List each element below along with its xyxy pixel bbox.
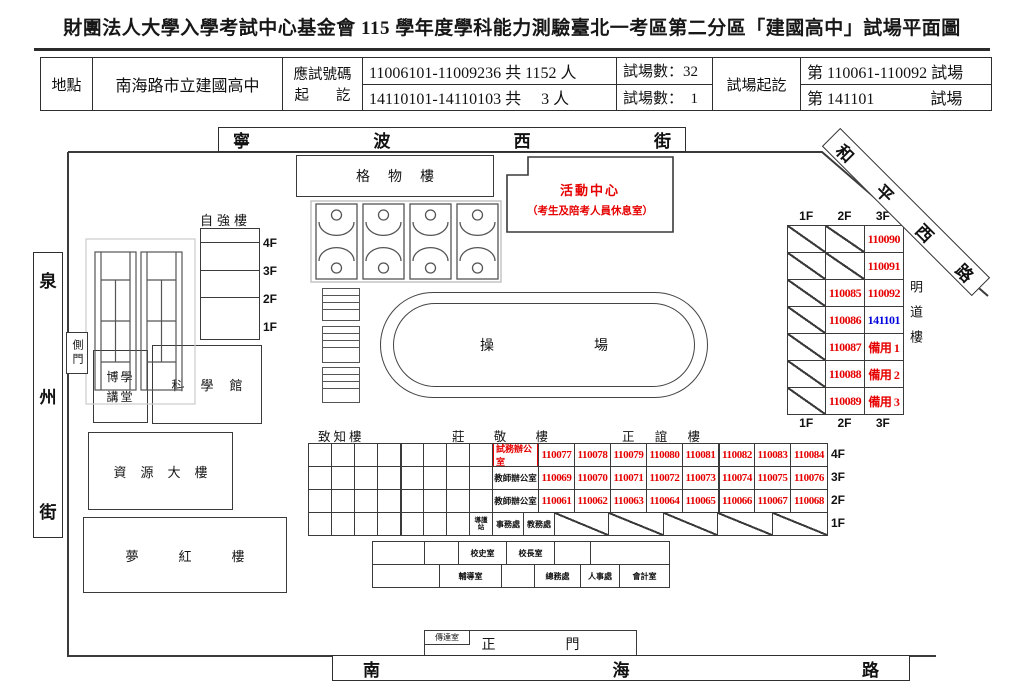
label-char: 正 [482,634,496,654]
room-cell: 110069 [539,467,575,489]
unused-cell [788,280,826,307]
label-char: 州 [40,383,57,408]
grid-row: 教師辦公室11006911007011007111007211007311007… [309,467,827,490]
label-char: 寧 [233,127,250,152]
empty-cell [332,513,355,535]
room-cell: 110067 [755,490,791,512]
room-cell: 110078 [575,444,611,466]
label-char: 海 [613,656,630,681]
room-cell: 110090 [865,226,903,253]
room-cell: 導護站 [470,513,493,535]
gatehouse: 傳達室 [425,631,470,645]
grid-row: 校史室校長室 [373,542,669,565]
unused-cell [664,513,718,535]
empty-cell [447,490,470,512]
room-cell: 110074 [719,467,755,489]
unused-cell [788,307,826,334]
mingdao-top-2f: 2F [825,209,863,223]
empty-cell [424,513,447,535]
unused-cell [773,513,827,535]
empty-cell [424,467,447,489]
basketball-courts [311,201,501,282]
label-char: 街 [40,498,57,523]
empty-cell [401,490,424,512]
room-cell: 141101 [865,307,903,334]
empty-cell [355,467,378,489]
empty-cell [425,542,459,564]
room-cell: 人事處 [581,565,620,587]
empty-cell [447,467,470,489]
side-gate: 側門 [66,332,88,374]
unused-cell [718,513,772,535]
mingdao-bottom-2f: 2F [825,416,863,430]
unused-cell [788,361,826,388]
room-cell: 試務辦公室 [493,444,539,466]
empty-cell [378,444,401,466]
label-char: 門 [566,634,580,654]
room-cell: 110072 [647,467,683,489]
empty-cell [447,444,470,466]
room-cell: 110088 [826,361,864,388]
unused-cell [609,513,663,535]
label-char: 街 [654,127,671,152]
empty-cell [424,490,447,512]
room-cell: 校長室 [507,542,555,564]
mingdao-bottom-1f: 1F [787,416,825,430]
room-cell: 110079 [611,444,647,466]
room-cell: 110065 [683,490,719,512]
room-cell: 事務處 [493,513,524,535]
room-cell: 110077 [539,444,575,466]
room-cell: 110076 [791,467,827,489]
unused-cell [788,388,826,414]
room-cell: 備用 1 [865,334,903,361]
tennis-courts [86,239,195,404]
empty-cell [378,490,401,512]
empty-cell [355,513,378,535]
main-gate: 傳達室 正門 [424,630,637,657]
activity-center-note: （考生及陪考人員休息室） [500,203,680,218]
empty-cell [502,565,535,587]
room-cell: 110063 [611,490,647,512]
main-gate-label: 正門 [482,634,580,654]
empty-cell [355,444,378,466]
grid-row: 導護站事務處教務處 [309,513,827,535]
mingdao-room-grid: 1100901100911100851100921100861411011100… [787,225,904,415]
unused-cell [555,513,609,535]
room-cell: 110075 [755,467,791,489]
room-cell: 110082 [719,444,755,466]
unused-cell [788,226,826,253]
street-nanhai: 南海路 [332,655,910,681]
label-char: 波 [373,127,390,152]
empty-cell [309,513,332,535]
empty-cell [470,467,493,489]
empty-cell [309,444,332,466]
room-cell: 教師辦公室 [493,467,539,489]
room-cell: 110070 [575,467,611,489]
empty-cell [332,444,355,466]
label-char: 西 [514,127,531,152]
room-cell: 110084 [791,444,827,466]
south-room-grid: 試務辦公室11007711007811007911008011008111008… [308,443,828,536]
room-cell: 110071 [611,467,647,489]
empty-cell [424,444,447,466]
room-cell: 110085 [826,280,864,307]
mingdao-floor-labels-top: 1F 2F 3F [787,209,902,223]
room-cell: 教師辦公室 [493,490,539,512]
mingdao-floor-labels-bottom: 1F 2F 3F [787,416,902,430]
empty-cell [355,490,378,512]
empty-cell [401,513,424,535]
office-label: 試務辦公室 [493,444,538,466]
label-char: 泉 [40,267,57,292]
grid-row: 教師辦公室11006111006211006311006411006511006… [309,490,827,513]
unused-cell [826,226,864,253]
street-ningbo-west: 寧波西街 [218,127,686,152]
room-cell: 110062 [575,490,611,512]
label-char: 南 [363,656,380,681]
room-cell: 備用 2 [865,361,903,388]
empty-cell [401,444,424,466]
room-cell: 110087 [826,334,864,361]
empty-cell [373,565,440,587]
mingdao-bottom-3f: 3F [864,416,902,430]
unused-cell [788,334,826,361]
room-cell: 110086 [826,307,864,334]
unused-cell [788,253,826,280]
empty-cell [401,467,424,489]
building-activity-center-label: 活動中心 [507,180,673,199]
room-cell: 110091 [865,253,903,280]
room-cell: 110089 [826,388,864,414]
empty-cell [309,490,332,512]
grid-row: 輔導室總務處人事處會計室 [373,565,669,587]
room-cell: 校史室 [459,542,507,564]
empty-cell [332,467,355,489]
room-cell: 110066 [719,490,755,512]
room-cell: 會計室 [620,565,669,587]
empty-cell [378,467,401,489]
empty-cell [470,490,493,512]
empty-cell [373,542,425,564]
empty-cell [309,467,332,489]
empty-cell [447,513,470,535]
room-cell: 110080 [647,444,683,466]
room-cell: 總務處 [535,565,581,587]
room-cell: 110064 [647,490,683,512]
room-cell: 教務處 [524,513,555,535]
room-cell: 110083 [755,444,791,466]
empty-cell [332,490,355,512]
street-quanzhou: 泉州街 [33,252,63,538]
room-cell: 備用 3 [865,388,903,414]
empty-cell [378,513,401,535]
room-cell: 輔導室 [440,565,502,587]
room-cell: 110092 [865,280,903,307]
mingdao-top-1f: 1F [787,209,825,223]
grid-row: 試務辦公室11007711007811007911008011008111008… [309,444,827,467]
empty-cell [555,542,591,564]
label-char: 路 [862,656,879,681]
room-cell: 110073 [683,467,719,489]
exam-site-floor-plan: 財團法人大學入學考試中心基金會 115 學年度學科能力測驗臺北一考區第二分區「建… [0,0,1024,683]
unused-cell [826,253,864,280]
empty-cell [591,542,669,564]
room-cell: 110081 [683,444,719,466]
offices-table: 校史室校長室輔導室總務處人事處會計室 [372,541,670,588]
room-cell: 110068 [791,490,827,512]
empty-cell [470,444,493,466]
room-cell: 110061 [539,490,575,512]
